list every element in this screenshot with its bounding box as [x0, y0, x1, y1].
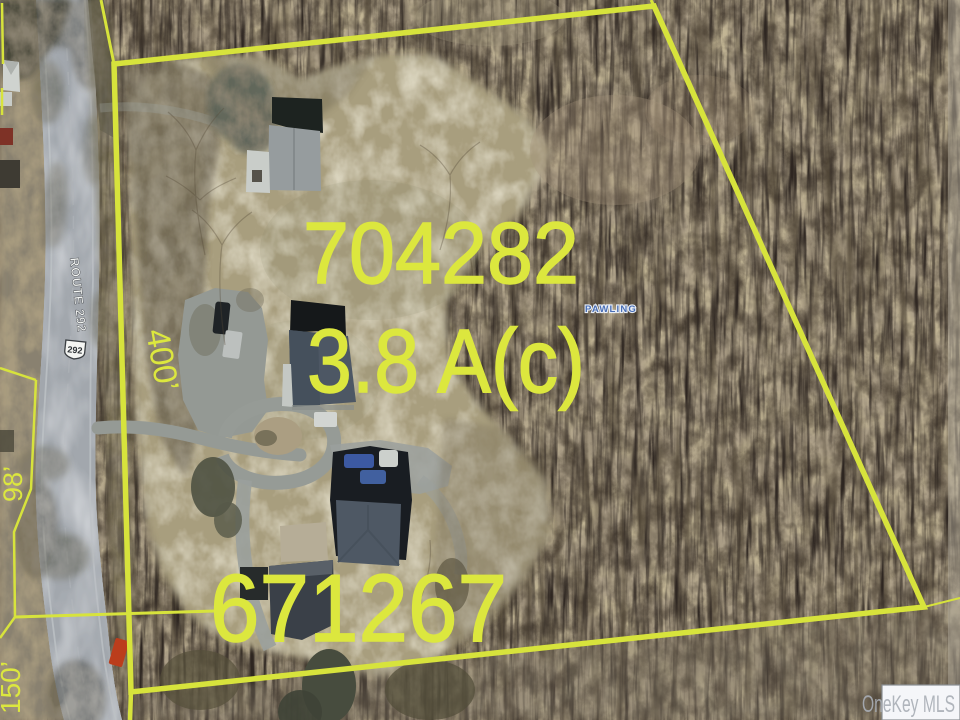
svg-text:OneKey MLS: OneKey MLS — [862, 691, 955, 718]
svg-text:671267: 671267 — [210, 555, 507, 662]
svg-text:704282: 704282 — [303, 205, 579, 302]
svg-text:98’: 98’ — [0, 466, 28, 502]
svg-text:150’: 150’ — [0, 661, 26, 714]
svg-text:292: 292 — [67, 344, 83, 356]
svg-text:3.8 A(c): 3.8 A(c) — [307, 312, 585, 412]
svg-text:PAWLING: PAWLING — [585, 304, 637, 315]
